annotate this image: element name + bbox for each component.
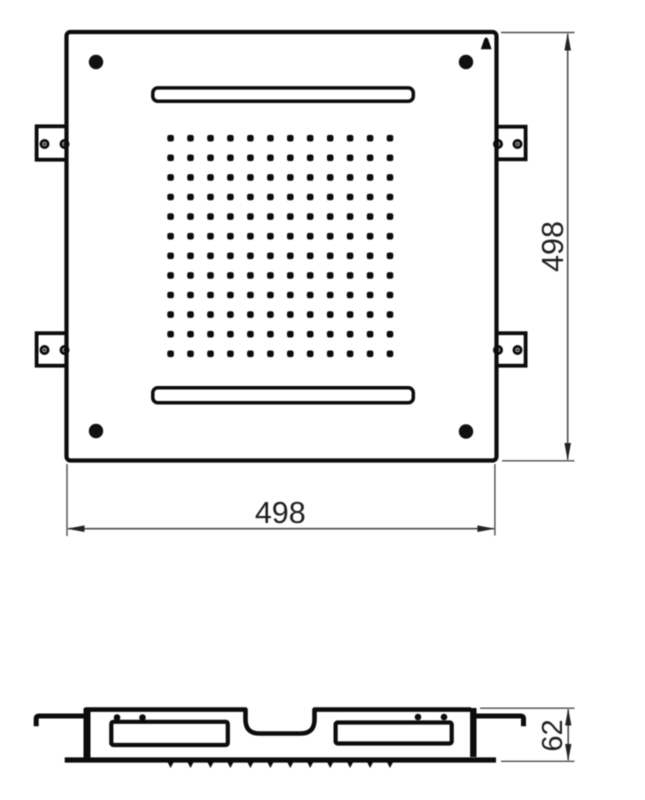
- svg-text:498: 498: [255, 496, 306, 530]
- svg-text:62: 62: [537, 719, 569, 751]
- svg-text:498: 498: [536, 221, 570, 272]
